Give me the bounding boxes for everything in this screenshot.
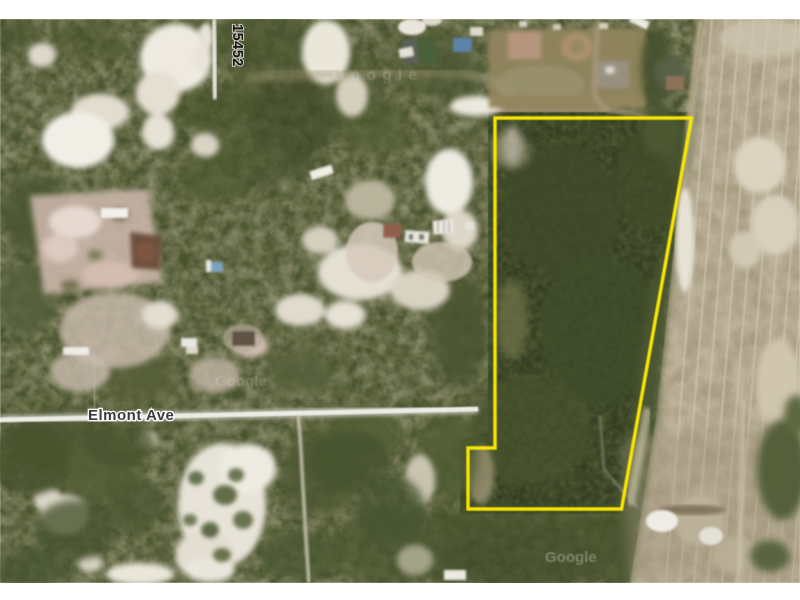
svg-text:Elmont Ave: Elmont Ave (88, 407, 174, 424)
svg-text:Google: Google (545, 549, 597, 566)
svg-text:15452: 15452 (229, 24, 245, 67)
svg-text:Google: Google (215, 373, 267, 390)
svg-text:Google: Google (332, 67, 423, 84)
